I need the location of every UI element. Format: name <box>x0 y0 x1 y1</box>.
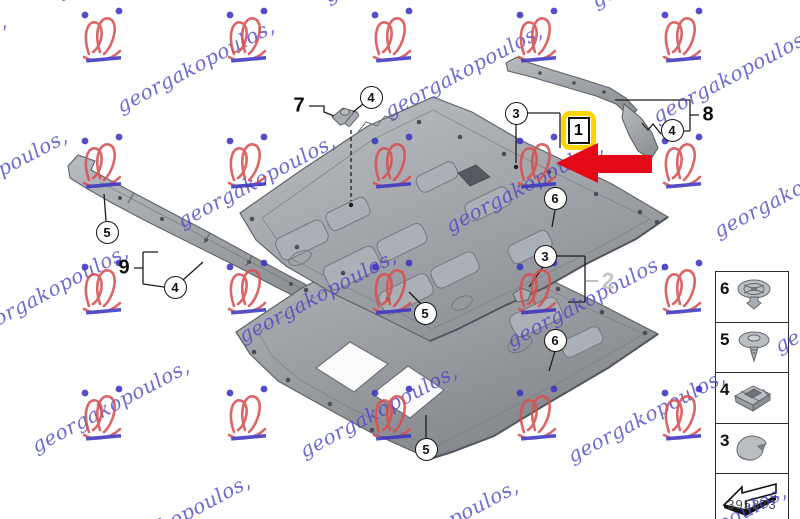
callout-label-9[interactable]: 9 <box>118 257 129 280</box>
legend-item-5-label: 5 <box>720 330 729 350</box>
legend-item-6-label: 6 <box>720 279 729 299</box>
callout-circle-4-right[interactable]: 4 <box>661 119 684 142</box>
callout-circle-3-mid[interactable]: 3 <box>534 245 557 268</box>
part-number: 395873 <box>710 497 794 512</box>
legend-item-3-label: 3 <box>720 431 729 451</box>
plastic-nut-icon <box>729 430 775 466</box>
callout-circle-6-lower[interactable]: 6 <box>544 329 567 352</box>
highlighted-callout-1: 1 <box>568 117 590 144</box>
parts-diagram-page: 6 5 4 <box>0 0 800 519</box>
callout-label-7[interactable]: 7 <box>293 95 304 118</box>
legend-item-4[interactable]: 4 <box>716 379 788 424</box>
callout-label-2[interactable]: 2 <box>602 268 615 295</box>
legend-item-6[interactable]: 6 <box>716 278 788 323</box>
legend-item-4-label: 4 <box>720 380 729 400</box>
callout-circle-5-bottom[interactable]: 5 <box>415 438 438 461</box>
legend-item-3[interactable]: 3 <box>716 430 788 475</box>
callout-label-8[interactable]: 8 <box>702 104 713 127</box>
fastener-legend: 6 5 4 <box>715 271 789 519</box>
callout-circle-5-left[interactable]: 5 <box>96 221 119 244</box>
legend-item-5[interactable]: 5 <box>716 329 788 374</box>
callout-circle-4-left[interactable]: 4 <box>164 276 187 299</box>
push-rivet-icon <box>729 278 775 314</box>
callout-circle-6-upper[interactable]: 6 <box>544 187 567 210</box>
callout-circle-4-top[interactable]: 4 <box>360 86 383 109</box>
callout-circle-3-top[interactable]: 3 <box>505 102 528 125</box>
callout-circle-5-mid[interactable]: 5 <box>414 302 437 325</box>
screw-rivet-icon <box>729 329 775 365</box>
highlight-ring[interactable]: 1 <box>561 111 596 150</box>
cage-nut-icon <box>729 379 775 415</box>
